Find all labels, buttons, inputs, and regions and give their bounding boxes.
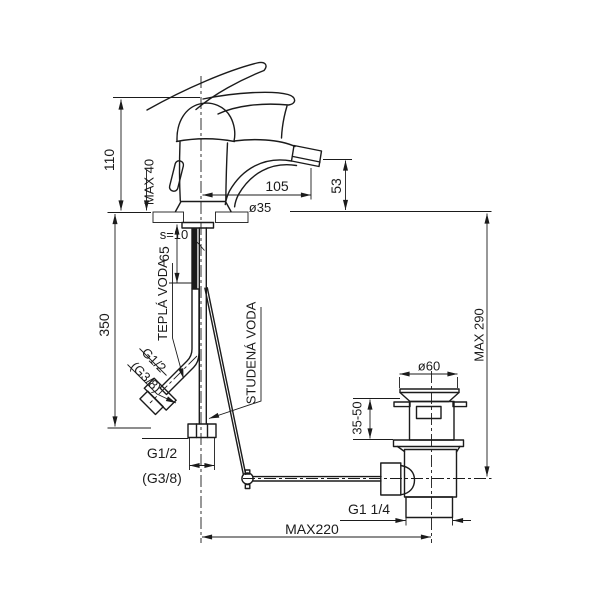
knurled-lever-nut [381, 463, 401, 495]
aerator [292, 146, 322, 167]
waste-thread-label: G1 1/4 [348, 501, 390, 517]
hot-water-label: TEPLÁ VODA [155, 259, 170, 341]
cold-water-label: STUDENÁ VODA [244, 301, 259, 404]
lower-clamp-plate [394, 440, 464, 447]
waste-tailpiece [406, 497, 453, 518]
threaded-shank [191, 228, 197, 289]
supply-thread-label: G1/2 [147, 445, 178, 461]
deck-hatch-right [216, 212, 249, 223]
dim-105-label: 105 [265, 178, 289, 194]
lever-end-edge [282, 106, 288, 138]
dim-350-label: 350 [96, 313, 112, 337]
popup-pull-knob [169, 160, 185, 192]
dim-110-label: 110 [101, 149, 117, 172]
spout-top-edge [234, 140, 295, 147]
deck-thickness-label: s=10 [160, 227, 189, 242]
hose-end-fitting [140, 391, 163, 414]
popup-rod-assembly [205, 288, 381, 489]
dim-53-label: 53 [328, 178, 344, 194]
faucet-dimension-drawing: 110 MAX 40 105 53 ø35 s=10 65 350 TEPLÁ … [0, 0, 600, 600]
waste-flange-dia-label: ø60 [418, 359, 440, 374]
cartridge-dome [177, 103, 235, 141]
ball-pin-bottom [245, 485, 250, 489]
clamp-range-label: 35-50 [350, 401, 365, 434]
waste-flange [400, 389, 459, 402]
rod-diagonal-b [207, 288, 245, 475]
counter-deck [153, 212, 248, 228]
dim-max40-label: MAX 40 [142, 159, 157, 205]
hot-water-leader [173, 263, 184, 379]
dim-max220-label: MAX220 [285, 521, 339, 537]
lever-ball-housing [401, 466, 415, 495]
clamp-tab-right [453, 402, 467, 407]
body-right-edge [226, 143, 228, 201]
centerlines [150, 76, 492, 543]
overflow-window [417, 407, 442, 419]
technical-drawing-page: 110 MAX 40 105 53 ø35 s=10 65 350 TEPLÁ … [0, 0, 600, 600]
deck-hatch-left [153, 212, 184, 223]
hole-diameter-label: ø35 [249, 200, 271, 215]
supply-assembly [140, 228, 216, 438]
waste-lower-body [405, 450, 457, 498]
dim-max290-label: MAX 290 [472, 308, 487, 361]
aerator-line [293, 157, 320, 163]
supply-hex-nut [188, 424, 216, 438]
popup-waste [381, 389, 467, 518]
body-left-edge [180, 142, 181, 201]
dome-base-line [177, 139, 235, 142]
supply-thread-alt-label: (G3/8) [142, 470, 182, 486]
faucet-outline [147, 62, 322, 211]
lever-horizontal [203, 92, 295, 114]
escutcheon [176, 202, 232, 212]
rod-diagonal-a [205, 288, 244, 475]
clamp-tab-left [394, 402, 410, 407]
